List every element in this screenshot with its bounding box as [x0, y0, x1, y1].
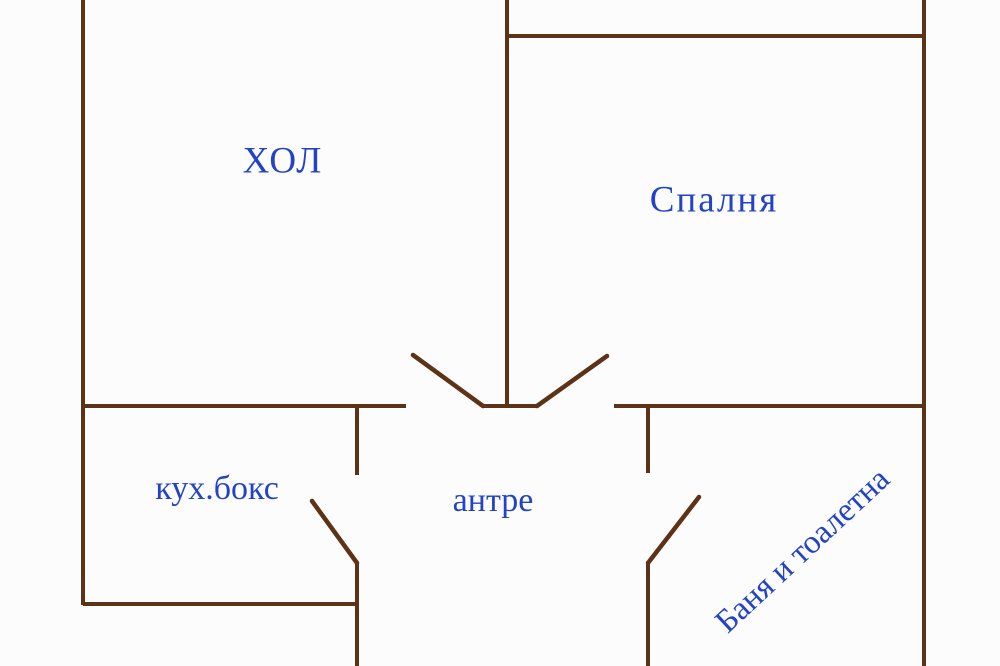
- room-label-kitchen: кух.бокс: [155, 472, 279, 506]
- room-label-bedroom: Спалня: [650, 182, 779, 219]
- kitchen-door-leaf: [312, 501, 357, 563]
- floor-plan: ХОЛ Спалня кух.бокс антре Баня и тоалетн…: [0, 0, 1000, 666]
- room-label-hall: ХОЛ: [243, 143, 324, 180]
- hall-double-door-right-leaf: [537, 356, 607, 406]
- bathroom-door-leaf: [648, 497, 699, 563]
- room-label-entry: антре: [453, 484, 534, 518]
- floor-plan-walls: [0, 0, 1000, 666]
- hall-double-door-left-leaf: [413, 355, 483, 406]
